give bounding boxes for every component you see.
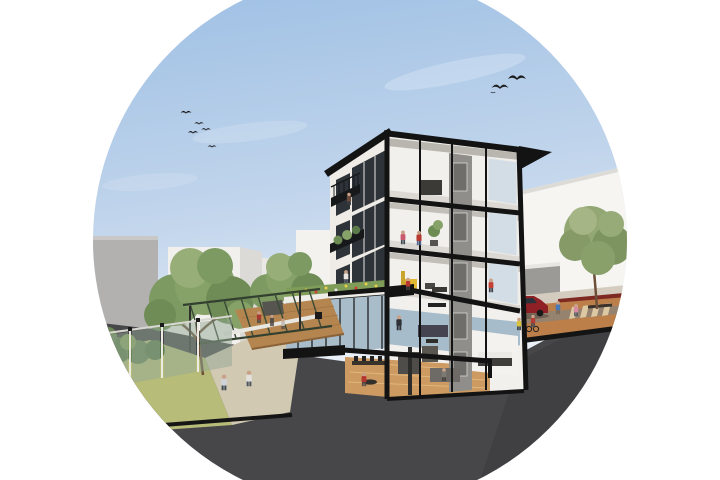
fence-post-cap-2 xyxy=(160,323,164,327)
render-canvas xyxy=(0,0,720,480)
fence-post-cap-1 xyxy=(128,327,132,331)
fence-post-cap-3 xyxy=(196,318,200,322)
wall-tv xyxy=(428,303,446,307)
office-sofa xyxy=(418,325,448,337)
basement-bench-top xyxy=(478,352,512,358)
tree-planter xyxy=(588,305,612,307)
tv-console xyxy=(432,287,447,292)
top-floor-cabinet xyxy=(420,180,442,195)
gray-slab-roof-edge xyxy=(93,236,158,240)
coffee-table xyxy=(426,339,438,343)
car-wheel-rear xyxy=(537,310,544,317)
beam-end-cap xyxy=(315,312,322,319)
circular-scene xyxy=(0,0,720,480)
basement-room xyxy=(472,330,518,376)
